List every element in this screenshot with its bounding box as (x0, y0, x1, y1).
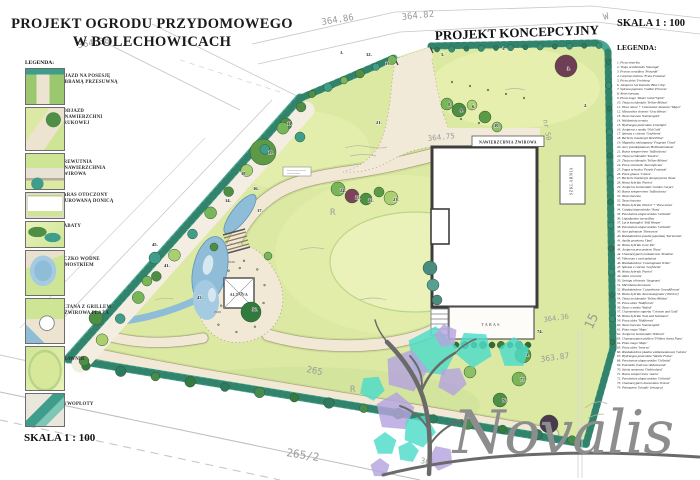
svg-text:20. Acer pseudoplatanus 'Brill: 20. Acer pseudoplatanus 'Brilliantissimu… (617, 145, 674, 149)
svg-text:TARAS OTOCZONY: TARAS OTOCZONY (60, 193, 108, 198)
svg-text:19. Magnolia soulangeana 'Frag: 19. Magnolia soulangeana 'Fragrant Cloud… (617, 141, 676, 145)
page-title-line2: W BOLECHOWICACH (73, 34, 232, 50)
path-sign (283, 167, 311, 176)
svg-text:11.: 11. (287, 121, 293, 126)
svg-text:71. Buxus sempervirens 'Aurea': 71. Buxus sempervirens 'Aurea' (617, 372, 659, 376)
svg-text:45.: 45. (152, 242, 158, 247)
svg-text:24. Picea orientalis 'Aureospi: 24. Picea orientalis 'Aureospicata' (617, 163, 663, 167)
svg-text:21. Buxus sempervirens 'Suffru: 21. Buxus sempervirens 'Suffruticosa' (617, 150, 667, 154)
svg-text:56. Taxus x media 'Wojtek': 56. Taxus x media 'Wojtek' (617, 305, 652, 309)
svg-text:14.: 14. (225, 198, 231, 203)
svg-text:3. Prunus cerasifera 'Pissardi: 3. Prunus cerasifera 'Pissardii' (617, 69, 658, 73)
svg-text:70. Salvia nemorosa 'Ostfriesl: 70. Salvia nemorosa 'Ostfriesland' (617, 368, 663, 372)
svg-text:56.: 56. (252, 307, 258, 312)
terrace-label: TARAS (481, 322, 500, 327)
svg-text:62. Juniperus horizontalis 'Wi: 62. Juniperus horizontalis 'Wiltonii' (617, 332, 664, 336)
svg-text:31. Taxus baccata: 31. Taxus baccata (617, 194, 641, 198)
scale-bottom: SKALA 1 : 100 (24, 432, 96, 444)
court-label: NAWIERZCHNIA ŻWIROWA (479, 139, 537, 144)
svg-text:2.: 2. (584, 103, 587, 108)
svg-text:45. Viburnum x carlcephalum: 45. Viburnum x carlcephalum (617, 256, 657, 260)
svg-text:OCZKO WODNE: OCZKO WODNE (60, 257, 100, 262)
svg-text:61. Pinus mugo 'Mops': 61. Pinus mugo 'Mops' (617, 328, 647, 332)
svg-text:4. Carpinus betulus 'Frans Fon: 4. Carpinus betulus 'Frans Fontaine' (617, 74, 666, 78)
svg-text:37. Larix kaempferi 'Stiff Wee: 37. Larix kaempferi 'Stiff Weeper' (617, 221, 662, 225)
svg-text:57. Chaenomeles superba 'Crims: 57. Chaenomeles superba 'Crimson and Gol… (617, 310, 678, 314)
svg-text:75.: 75. (520, 377, 526, 382)
svg-text:29. Juniperus horizontalis 'Go: 29. Juniperus horizontalis 'Golden Carpe… (617, 185, 674, 189)
svg-text:1. Picea omorika: 1. Picea omorika (617, 61, 640, 65)
svg-text:5.: 5. (441, 52, 444, 57)
svg-text:PODJAZD: PODJAZD (60, 109, 84, 114)
svg-text:53. Hosta hybrida 'Aureomargin: 53. Hosta hybrida 'Aureomarginata' ('Pat… (617, 292, 678, 296)
svg-text:28. Hosta hybrida 'Patriot': 28. Hosta hybrida 'Patriot' (617, 181, 653, 185)
svg-text:47. Spiraea x cinerea 'Grefshe: 47. Spiraea x cinerea 'Grefsheim' (617, 265, 661, 269)
svg-text:57.: 57. (238, 291, 244, 296)
left-legend-heading: LEGENDA: (25, 60, 54, 66)
svg-text:ŻWIROWA: ŻWIROWA (60, 171, 87, 177)
svg-text:5. Picea abies 'Frohburg': 5. Picea abies 'Frohburg' (617, 78, 651, 82)
svg-text:ŻYWOPŁOTY: ŻYWOPŁOTY (60, 401, 94, 407)
svg-text:Z BRAMĄ PRZESUWNĄ: Z BRAMĄ PRZESUWNĄ (60, 80, 118, 85)
svg-text:74. Pelargonia 'Schadis' (wisz: 74. Pelargonia 'Schadis' (wisząca) (617, 385, 663, 389)
svg-text:24.: 24. (340, 188, 346, 193)
svg-text:9.: 9. (460, 108, 463, 113)
page-title-line1: PROJEKT OGRODU PRZYDOMOWEGO (11, 16, 293, 32)
svg-text:9. Pinus mugo 'Winter Gold'/'O: 9. Pinus mugo 'Winter Gold'/'Ophir' (617, 96, 665, 100)
svg-text:51. Microbiota decussata: 51. Microbiota decussata (617, 283, 651, 287)
svg-text:8. Abies koreana: 8. Abies koreana (617, 92, 639, 96)
svg-text:ŻWIR: ŻWIR (228, 259, 235, 264)
svg-text:52. Rhododendron 'Catawbiense: 52. Rhododendron 'Catawbiense Grandiflor… (617, 287, 680, 291)
svg-text:48. Hosta hybrida 'Patriot': 48. Hosta hybrida 'Patriot' (617, 270, 653, 274)
svg-text:21.: 21. (376, 120, 382, 125)
svg-text:43.: 43. (197, 295, 203, 300)
svg-text:1.: 1. (340, 50, 343, 55)
svg-text:64. Pinus mugo 'Mops': 64. Pinus mugo 'Mops' (617, 341, 647, 345)
svg-text:ŻWIR: ŻWIR (214, 309, 221, 314)
svg-text:R: R (330, 208, 336, 218)
svg-text:7. Spiraea japonica 'Golden Pr: 7. Spiraea japonica 'Golden Princess' (617, 87, 667, 91)
svg-text:19.: 19. (268, 150, 274, 155)
svg-text:17.: 17. (257, 208, 263, 213)
svg-text:BRUKOWEJ: BRUKOWEJ (60, 121, 90, 126)
svg-text:67. Hydrangea paniculata 'Vani: 67. Hydrangea paniculata 'Vanille Fraise… (617, 354, 673, 358)
scale-top: SKALA 1 : 100 (617, 18, 685, 29)
svg-text:1.: 1. (502, 46, 505, 51)
svg-text:22. Thuja occidentalis 'Danica: 22. Thuja occidentalis 'Danica' (617, 154, 659, 158)
svg-text:17. Spiraea x cinerea 'Grefshe: 17. Spiraea x cinerea 'Grefsheim' (617, 132, 661, 136)
svg-text:39. Acer palmatum 'Dissectum': 39. Acer palmatum 'Dissectum' (617, 230, 658, 234)
svg-text:36. Liquidambar styraciflua: 36. Liquidambar styraciflua (617, 216, 654, 220)
svg-text:68. Pennisetum alopecuroides ': 68. Pennisetum alopecuroides 'Gelbstiel' (617, 359, 671, 363)
svg-text:W: W (602, 12, 610, 23)
svg-text:40. Rhododendron (azalia japoń: 40. Rhododendron (azalia japońska) 'Kerm… (617, 234, 682, 238)
svg-text:R: R (350, 385, 356, 395)
svg-text:364.82: 364.82 (401, 10, 434, 23)
svg-text:23.: 23. (393, 197, 399, 202)
svg-text:RABATY: RABATY (60, 224, 81, 229)
svg-text:10.: 10. (494, 123, 500, 128)
svg-text:66. Rhododendron (Azalia wielk: 66. Rhododendron (Azalia wielkokwiatowa)… (617, 350, 687, 354)
svg-text:18. Berberis thunbergii 'Red P: 18. Berberis thunbergii 'Red Pillar' (617, 136, 664, 140)
svg-text:3.: 3. (567, 66, 570, 71)
svg-text:6.: 6. (472, 104, 475, 109)
svg-text:49. Abies concolor: 49. Abies concolor (617, 274, 642, 278)
svg-text:25. Fagus sylvatica 'Purple Fo: 25. Fagus sylvatica 'Purple Fountain' (617, 167, 667, 171)
svg-text:14. Waldsteinia ternata: 14. Waldsteinia ternata (617, 118, 648, 122)
svg-text:59. Picea abies 'Nidiformis': 59. Picea abies 'Nidiformis' (617, 319, 654, 323)
svg-text:63. Chamaecyparis pisifera 'Fi: 63. Chamaecyparis pisifera 'Filifera Aur… (617, 336, 683, 340)
svg-text:11. Vinca minor + Cotoneaster: 11. Vinca minor + Cotoneaster dammeri 'M… (617, 105, 681, 109)
svg-text:12.: 12. (366, 52, 372, 57)
svg-text:60. Taxus baccata 'Summergold': 60. Taxus baccata 'Summergold' (617, 323, 660, 327)
svg-text:74.: 74. (537, 329, 543, 334)
svg-text:Z NAWIERZCHNI: Z NAWIERZCHNI (60, 115, 102, 120)
svg-text:13.: 13. (385, 61, 391, 66)
svg-text:18.: 18. (241, 171, 247, 176)
garden-plan-sheet: ALTANA TARAS NAWIERZCHNIA ŻWIROWA SZKLAR… (0, 0, 700, 480)
svg-text:34. Catalpa bignonioides 'Nana: 34. Catalpa bignonioides 'Nana' (617, 207, 660, 211)
svg-text:65. Picea abies 'Inversa': 65. Picea abies 'Inversa' (617, 345, 650, 349)
svg-text:MUROWANĄ DONICĄ: MUROWANĄ DONICĄ (60, 199, 114, 204)
svg-text:ALTANA Z GRILLEM: ALTANA Z GRILLEM (60, 305, 111, 310)
svg-text:WJAZD NA POSESJĘ: WJAZD NA POSESJĘ (60, 74, 110, 79)
svg-text:16. Juniperus x media 'Old Gol: 16. Juniperus x media 'Old Gold' (617, 127, 661, 131)
house-annex (431, 209, 449, 244)
svg-text:TRAWNIK: TRAWNIK (60, 357, 85, 362)
svg-text:30. Buxus sempervirens 'Suffru: 30. Buxus sempervirens 'Suffruticosa' (617, 190, 667, 194)
svg-text:41.: 41. (164, 263, 170, 268)
logo-wordmark: Novalis (451, 398, 673, 468)
svg-text:25.: 25. (355, 195, 361, 200)
svg-text:54. Thuja occidentalis 'Yellow: 54. Thuja occidentalis 'Yellow Ribbon' (617, 296, 668, 300)
svg-text:58. Hosta hybrida 'Sum and Sub: 58. Hosta hybrida 'Sum and Substance' (617, 314, 669, 318)
svg-text:38. Pennisetum alopecuroides ': 38. Pennisetum alopecuroides 'Gelbstiel' (617, 225, 671, 229)
svg-text:16.: 16. (253, 186, 259, 191)
subtitle: PROJEKT KONCEPCYJNY (435, 22, 600, 43)
svg-text:55. Picea abies 'Nidiformis': 55. Picea abies 'Nidiformis' (617, 301, 654, 305)
svg-text:DREWUTNIA: DREWUTNIA (60, 160, 93, 165)
svg-text:27. Berberis thunbergii 'Atrop: 27. Berberis thunbergii 'Atropurpurea Na… (617, 176, 676, 180)
svg-text:43. Juniperus procumbens 'Nana: 43. Juniperus procumbens 'Nana' (617, 247, 661, 251)
svg-text:15. Hydrangea paniculata 'Lime: 15. Hydrangea paniculata 'Limelight' (617, 123, 667, 127)
svg-text:12. Miscanthus sinensis 'Graci: 12. Miscanthus sinensis 'Gracillimus' (617, 109, 667, 113)
svg-text:364.86: 364.86 (321, 13, 355, 28)
svg-text:22.: 22. (368, 198, 374, 203)
svg-text:13. Taxus baccata 'Summergold': 13. Taxus baccata 'Summergold' (617, 114, 660, 118)
svg-text:23. Thuja occidentalis 'Yellow: 23. Thuja occidentalis 'Yellow Ribbon' (617, 158, 668, 162)
svg-text:6. Juniperus horizontalis 'Blu: 6. Juniperus horizontalis 'Blue Chip' (617, 83, 666, 87)
svg-text:2. Thuja occidentalis 'Smaragd: 2. Thuja occidentalis 'Smaragd' (617, 65, 659, 69)
svg-text:8.: 8. (448, 102, 451, 107)
svg-text:+ ŻWIROWA PLAŻA: + ŻWIROWA PLAŻA (60, 310, 109, 316)
svg-text:69. Potentilla fruticosa 'Abbo: 69. Potentilla fruticosa 'Abbotswood' (617, 363, 666, 367)
svg-text:44. Chamaecyparis nootkatensis: 44. Chamaecyparis nootkatensis 'Pendula' (617, 252, 673, 256)
svg-text:26. Picea glauca 'Conica': 26. Picea glauca 'Conica' (617, 172, 651, 176)
svg-text:265/2: 265/2 (286, 446, 321, 464)
svg-text:33. Hosta hybrida 'Patriot' +: 33. Hosta hybrida 'Patriot' + Vinca mino… (617, 203, 673, 207)
svg-text:73. Chamaecyparis lawsoniana ': 73. Chamaecyparis lawsoniana 'Ivonne' (617, 381, 670, 385)
svg-text:+ NAWIERZCHNIA: + NAWIERZCHNIA (60, 166, 106, 171)
right-legend-heading: LEGENDA: (617, 43, 657, 52)
plan-drawing: ALTANA TARAS NAWIERZCHNIA ŻWIROWA SZKLAR… (0, 0, 700, 480)
svg-text:50. Syringa chinensis 'Saugean: 50. Syringa chinensis 'Saugeana' (617, 279, 661, 283)
svg-text:Z MOSTKIEM: Z MOSTKIEM (60, 263, 94, 268)
plant-list: 1. Picea omorika2. Thuja occidentalis 'S… (617, 61, 687, 390)
svg-text:42. Hosta hybrida 'Love Pat': 42. Hosta hybrida 'Love Pat' (617, 243, 655, 247)
svg-text:32. Taxus baccata: 32. Taxus baccata (617, 198, 641, 202)
svg-text:41. Azalia gruntowa 'Opal': 41. Azalia gruntowa 'Opal' (617, 239, 653, 243)
svg-text:72. Pennisetum alopecuroides ': 72. Pennisetum alopecuroides 'Gelbstiel' (617, 376, 671, 380)
svg-text:10. Thuja occidentalis 'Yellow: 10. Thuja occidentalis 'Yellow Ribbon' (617, 101, 668, 105)
svg-text:46. Rhododendron 'Cunninghams: 46. Rhododendron 'Cunninghams White' (617, 261, 671, 265)
greenhouse-label: SZKLARNIA (569, 167, 574, 195)
svg-text:35. Pennisetum alopecuroides ': 35. Pennisetum alopecuroides 'Gelbstiel' (617, 212, 671, 216)
